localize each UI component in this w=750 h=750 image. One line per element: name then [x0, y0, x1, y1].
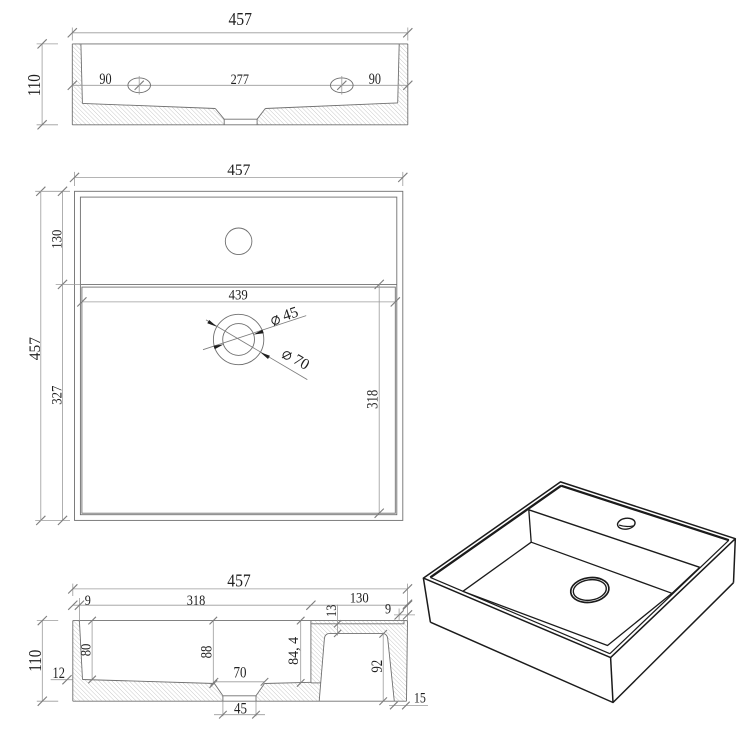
svg-text:318: 318 — [365, 389, 382, 408]
svg-text:84, 4: 84, 4 — [286, 636, 302, 664]
svg-text:15: 15 — [414, 691, 426, 707]
svg-text:457: 457 — [27, 337, 44, 360]
svg-text:439: 439 — [229, 288, 248, 304]
svg-text:110: 110 — [24, 74, 44, 96]
svg-text:130: 130 — [50, 230, 66, 249]
svg-text:12: 12 — [53, 665, 65, 682]
svg-text:457: 457 — [227, 570, 251, 590]
svg-text:80: 80 — [79, 644, 95, 657]
svg-text:457: 457 — [228, 9, 252, 29]
svg-text:9: 9 — [85, 593, 91, 609]
svg-text:90: 90 — [99, 71, 111, 88]
svg-text:110: 110 — [25, 649, 45, 671]
svg-text:318: 318 — [187, 593, 206, 609]
svg-text:457: 457 — [227, 162, 250, 179]
svg-text:130: 130 — [350, 591, 369, 607]
svg-text:70: 70 — [234, 664, 247, 681]
svg-text:9: 9 — [385, 602, 391, 618]
svg-text:45: 45 — [234, 700, 247, 717]
svg-text:13: 13 — [324, 605, 340, 617]
svg-text:327: 327 — [50, 386, 66, 405]
svg-text:277: 277 — [231, 72, 250, 88]
svg-text:90: 90 — [369, 71, 381, 88]
svg-text:92: 92 — [369, 660, 386, 673]
svg-text:88: 88 — [199, 645, 216, 658]
